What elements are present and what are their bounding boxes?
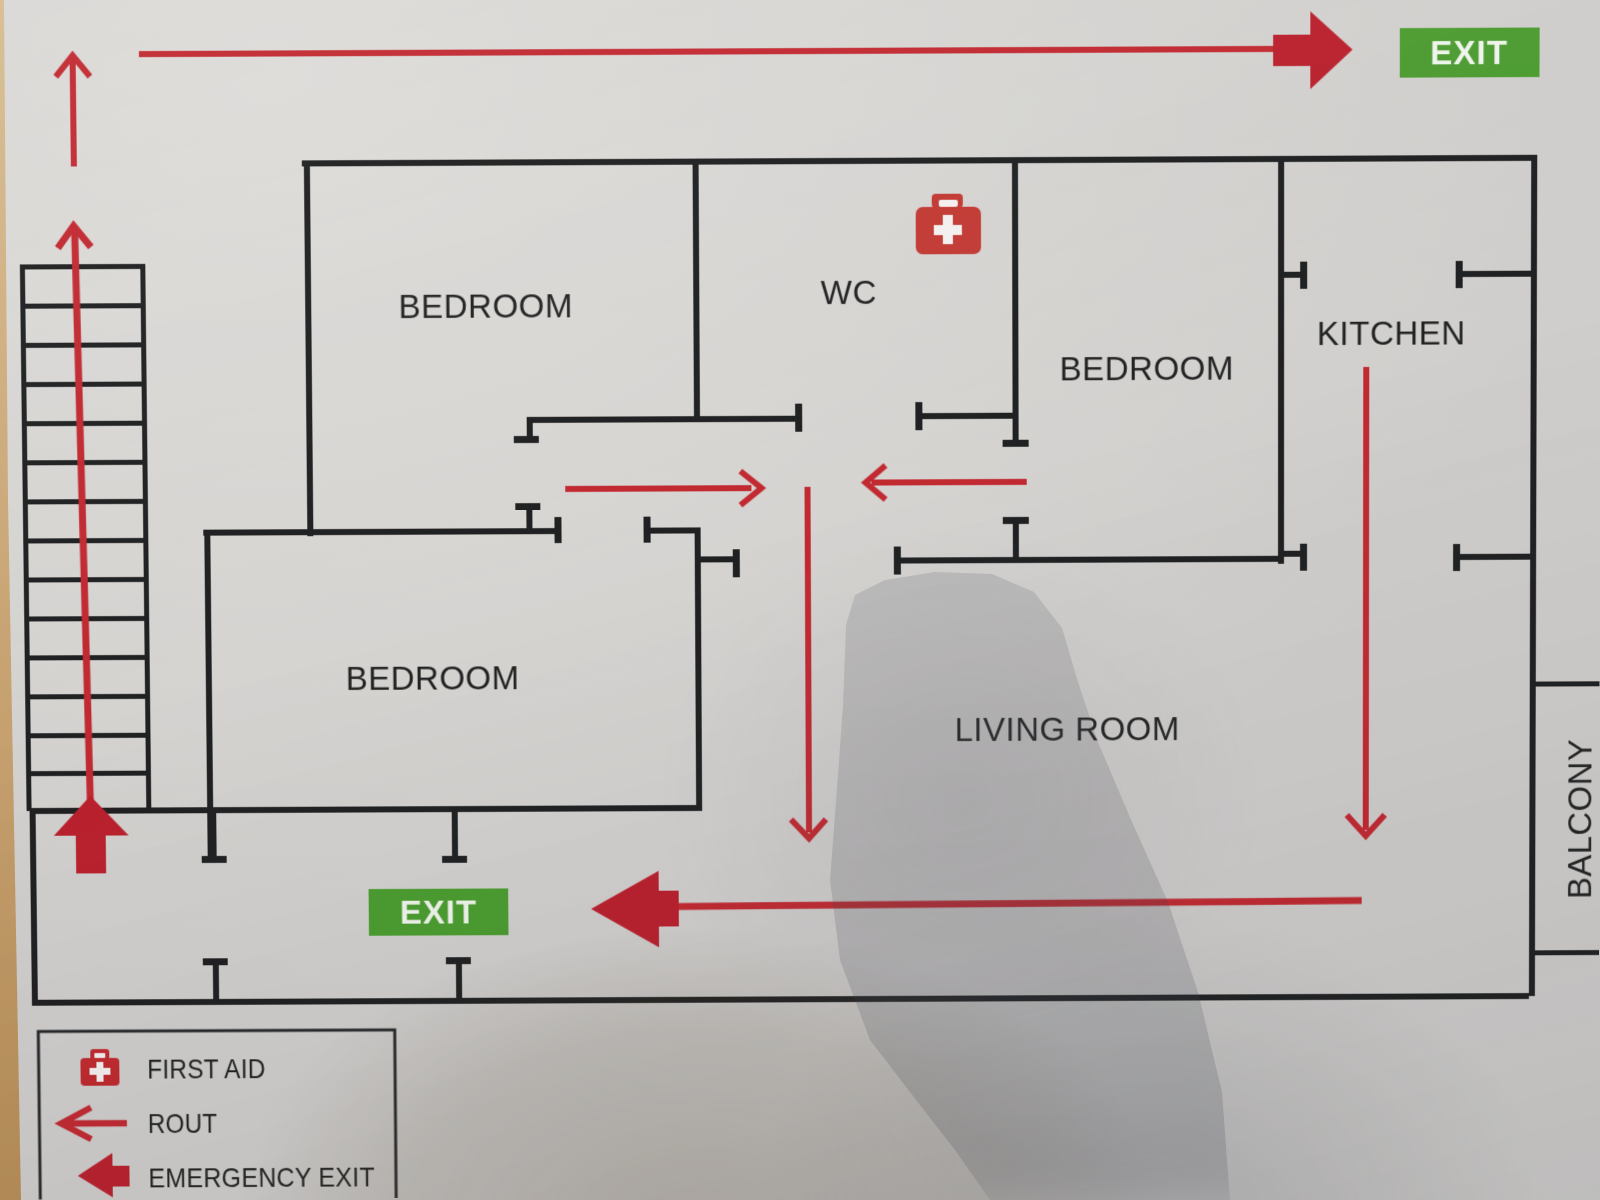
svg-text:BALCONY: BALCONY [1562, 739, 1599, 900]
svg-text:BEDROOM: BEDROOM [346, 660, 520, 698]
svg-text:KITCHEN: KITCHEN [1317, 315, 1466, 353]
svg-text:LIVING ROOM: LIVING ROOM [955, 711, 1180, 749]
svg-text:WC: WC [821, 275, 877, 312]
svg-text:ROUT: ROUT [148, 1108, 218, 1139]
svg-text:EXIT: EXIT [1430, 35, 1508, 73]
svg-text:BEDROOM: BEDROOM [398, 288, 573, 326]
svg-text:EMERGENCY EXIT: EMERGENCY EXIT [148, 1162, 375, 1194]
svg-text:BEDROOM: BEDROOM [1060, 351, 1234, 389]
svg-text:FIRST AID: FIRST AID [147, 1053, 266, 1084]
svg-text:EXIT: EXIT [400, 895, 477, 932]
